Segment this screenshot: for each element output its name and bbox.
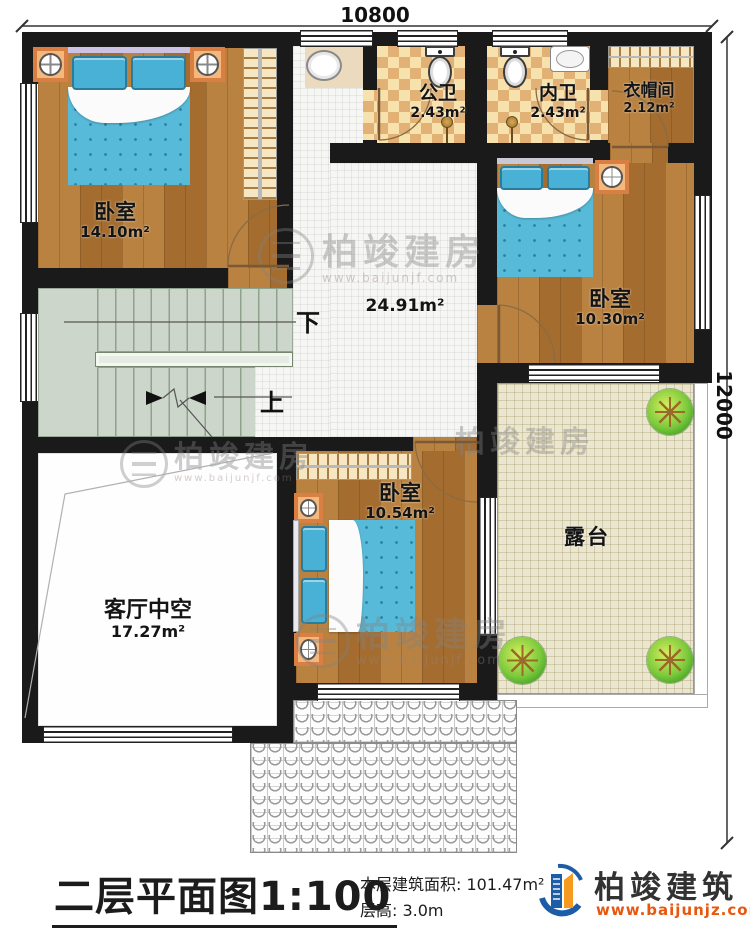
floor-plan-page: 柏竣建房 www.baijunjf.com 柏竣建房 www.baijunjf.… <box>0 0 750 928</box>
room-name: 内卫 <box>518 83 598 105</box>
drawing-stats: 本层建筑面积: 101.47m² 层高: 3.0m <box>360 872 544 923</box>
watermark-logo-icon <box>120 440 168 488</box>
wardrobe <box>243 48 277 200</box>
window-bath-public-top <box>397 30 458 47</box>
room-area: 17.27m² <box>68 623 228 641</box>
headboard <box>497 158 593 164</box>
room-area: 2.43m² <box>518 105 598 121</box>
pillow <box>547 166 590 190</box>
lamp-icon <box>300 499 317 517</box>
branches-icon <box>655 397 684 426</box>
room-label-hall-area: 24.91m² <box>345 297 465 317</box>
window-bedroom-bottom <box>317 683 460 701</box>
stair-up-label: 上 <box>260 383 284 418</box>
watermark-url: www.baijunjf.com <box>356 654 512 668</box>
room-name: 卧室 <box>330 481 470 505</box>
window-stair-left <box>20 313 38 402</box>
watermark: 柏竣建房 www.baijunjf.com <box>356 618 512 667</box>
room-name: 公卫 <box>398 83 478 105</box>
window-bedroom-terrace <box>528 364 660 382</box>
pillow <box>72 56 127 90</box>
nightstand <box>190 47 225 82</box>
lamp-icon <box>39 53 62 76</box>
watermark-text: 柏竣建房 <box>322 232 486 273</box>
watermark-logo-icon <box>296 614 350 668</box>
plant-icon <box>647 637 693 683</box>
window-living-bottom <box>43 726 233 743</box>
stair-flight-lower <box>97 367 255 437</box>
watermark: 柏竣建房 www.baijunjf.com <box>322 234 486 284</box>
watermark-text: 柏竣建房 <box>174 440 314 475</box>
cloakroom-hanger-rail <box>608 46 694 68</box>
floor-area-label: 本层建筑面积: 101.47m² <box>360 872 544 898</box>
watermark-url: www.baijunjf.com <box>174 474 314 485</box>
window-bath-ensuite-top <box>492 30 568 47</box>
stair-flight-upper <box>97 288 293 352</box>
window-bedroom-right <box>694 195 711 330</box>
watermark: 柏竣建房 <box>455 427 595 459</box>
drawing-title: 二层平面图1:100 <box>52 864 397 928</box>
room-name: 卧室 <box>545 287 675 311</box>
room-name: 卧室 <box>40 200 190 224</box>
room-area: 14.10m² <box>40 224 190 241</box>
room-area: 2.43m² <box>398 105 478 121</box>
floor-drain-stem <box>511 127 513 143</box>
watermark-text: 柏竣建房 <box>455 425 595 460</box>
floor-drain-stem <box>446 127 448 143</box>
room-label-bedroom-tl: 卧室 14.10m² <box>40 200 190 241</box>
hall-tile-passage <box>293 143 330 437</box>
pillow <box>500 166 543 190</box>
room-area: 10.54m² <box>330 505 470 522</box>
stair-rail <box>95 352 293 367</box>
watermark-logo-icon <box>258 228 314 284</box>
terrace-parapet-right <box>694 383 708 708</box>
room-label-cloakroom: 衣帽间 2.12m² <box>603 82 695 116</box>
living-void-floor <box>38 453 277 726</box>
room-label-living-void: 客厅中空 17.27m² <box>68 598 228 642</box>
porch-roof-upper <box>293 700 517 743</box>
drawing-title-text: 二层平面图 <box>54 874 259 920</box>
bath-public-door-gap <box>363 90 377 140</box>
pillow <box>131 56 186 90</box>
bed <box>497 158 593 277</box>
room-label-bath-ensuite: 内卫 2.43m² <box>518 83 598 121</box>
room-area: 24.91m² <box>345 297 465 317</box>
room-name: 衣帽间 <box>603 82 695 102</box>
branches-icon <box>655 645 684 674</box>
pillow <box>301 526 327 572</box>
hall-tile-upper <box>293 88 363 143</box>
stair-down-label: 下 <box>296 303 320 338</box>
lamp-icon <box>196 53 219 76</box>
headboard <box>68 47 190 53</box>
headboard <box>293 520 299 632</box>
nightstand <box>294 493 323 523</box>
watermark-url: www.baijunjf.com <box>322 272 486 285</box>
room-area: 2.12m² <box>603 102 695 117</box>
room-label-bedroom-bottom: 卧室 10.54m² <box>330 481 470 522</box>
watermark: 柏竣建房 www.baijunjf.com <box>174 442 314 484</box>
room-name: 客厅中空 <box>68 598 228 623</box>
sink-icon <box>550 46 590 72</box>
nightstand <box>595 160 629 194</box>
plant-icon <box>647 389 693 435</box>
terrace-parapet-bottom <box>497 694 708 708</box>
room-name: 露台 <box>545 525 629 549</box>
floor-height-label: 层高: 3.0m <box>360 898 544 924</box>
watermark-text: 柏竣建房 <box>356 615 512 655</box>
porch-roof-lower <box>250 743 517 853</box>
room-area: 10.30m² <box>545 311 675 328</box>
dimension-top: 10800 <box>320 3 430 27</box>
hall-tile-alcove-sliver <box>293 46 305 88</box>
nightstand <box>33 47 68 82</box>
washbasin-icon <box>306 50 342 81</box>
brand-url: www.baijunjz.com <box>596 901 750 919</box>
window-washstand-top <box>300 30 373 47</box>
bedroom-right-door-gap <box>477 305 497 363</box>
lamp-icon <box>601 166 623 188</box>
window-bedroom-tl-left <box>20 83 38 223</box>
bed <box>68 47 190 185</box>
room-label-bath-public: 公卫 2.43m² <box>398 83 478 121</box>
room-label-terrace: 露台 <box>545 525 629 549</box>
dimension-right: 12000 <box>712 362 736 448</box>
room-label-bedroom-right: 卧室 10.30m² <box>545 287 675 328</box>
